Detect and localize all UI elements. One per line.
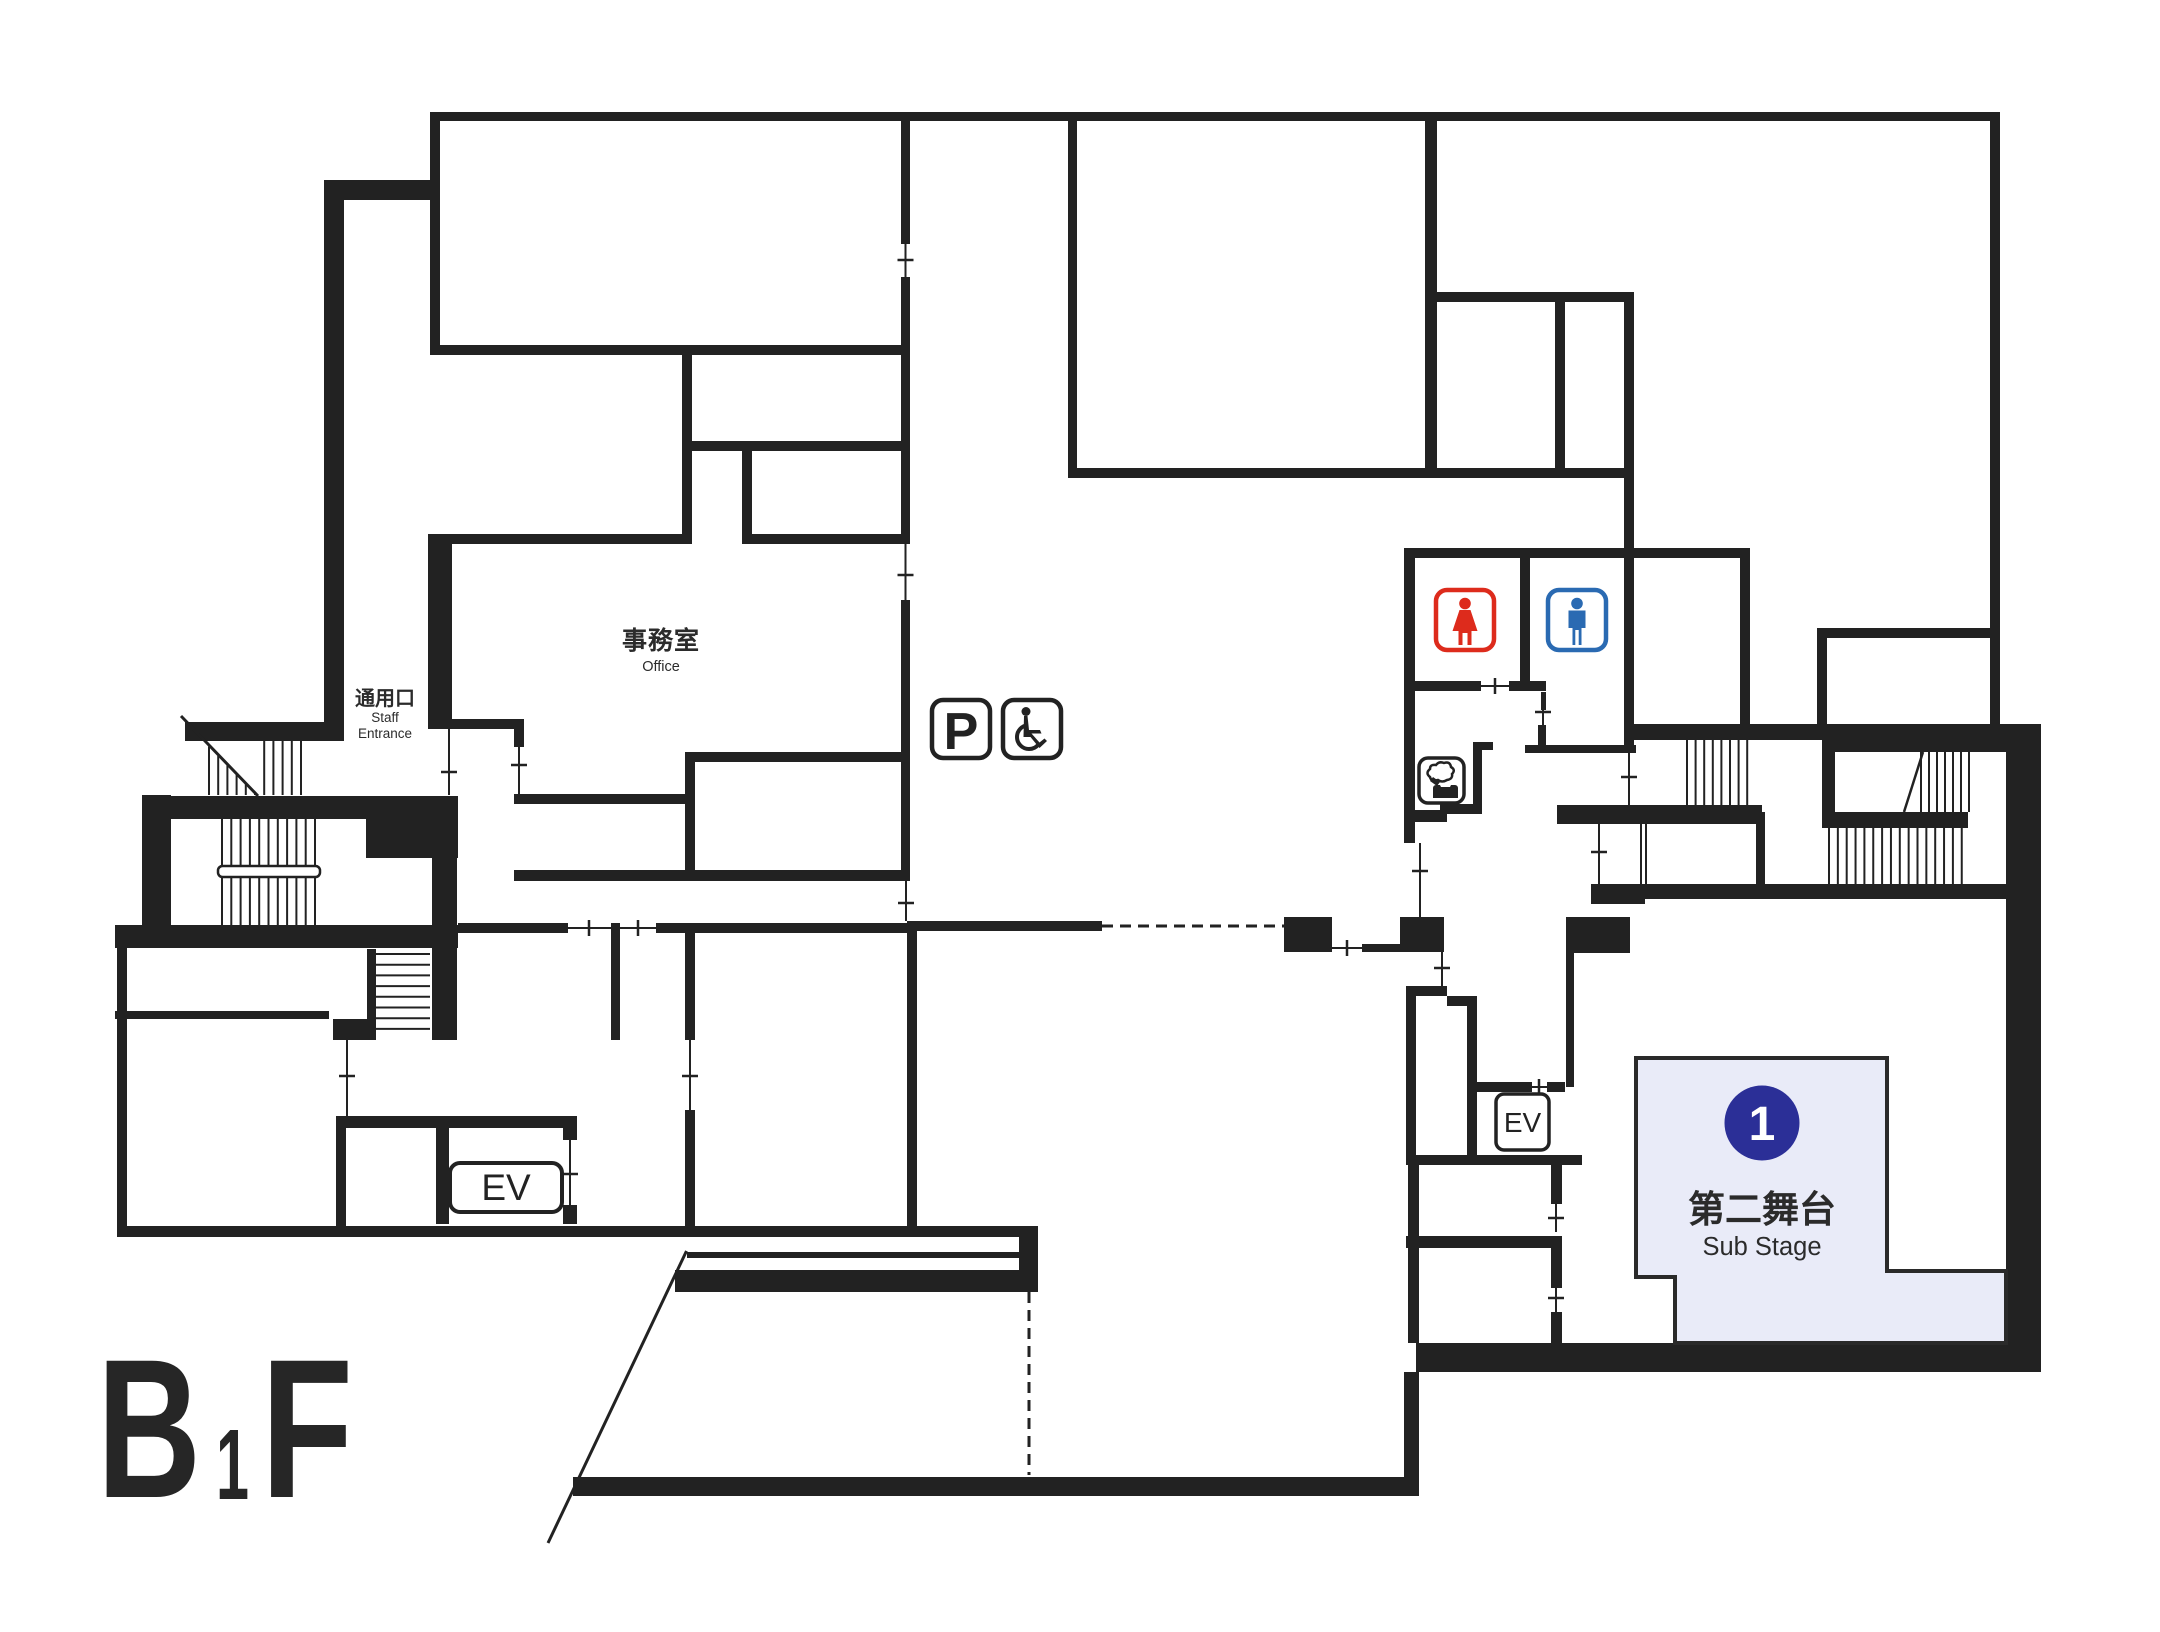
svg-text:1: 1 (216, 1409, 249, 1521)
svg-text:Sub Stage: Sub Stage (1702, 1233, 1821, 1261)
svg-text:F: F (261, 1318, 353, 1539)
svg-text:EV: EV (1504, 1107, 1542, 1138)
svg-text:EV: EV (481, 1167, 531, 1208)
svg-text:Entrance: Entrance (358, 726, 412, 741)
svg-text:1: 1 (1749, 1098, 1776, 1151)
svg-text:通用口: 通用口 (355, 687, 415, 710)
svg-text:事務室: 事務室 (622, 626, 700, 655)
svg-text:Office: Office (642, 659, 680, 675)
svg-text:P: P (944, 703, 979, 761)
svg-text:第二舞台: 第二舞台 (1688, 1189, 1836, 1230)
svg-text:B: B (97, 1318, 201, 1539)
svg-text:Staff: Staff (371, 710, 399, 725)
